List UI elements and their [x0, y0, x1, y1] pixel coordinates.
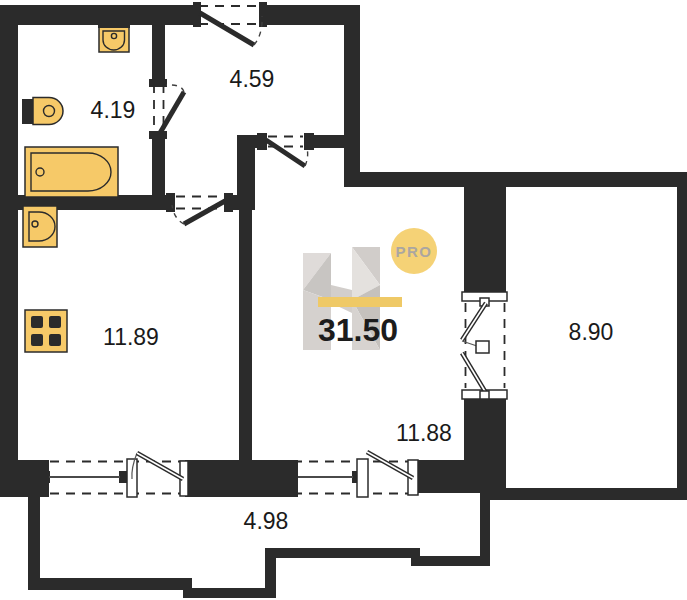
living-area-label: 11.88 [396, 420, 452, 446]
balcony-right-area-label: 8.90 [569, 319, 614, 345]
living-door-icon [266, 137, 308, 167]
floor-plan: PRO 4.19 4.59 11.89 11.88 8.90 4.98 31.5… [0, 0, 687, 600]
kitchen-area-label: 11.89 [103, 324, 159, 350]
stove-icon [25, 310, 67, 352]
kitchen-sink-icon [23, 206, 57, 247]
logo-underline-bar [318, 297, 402, 307]
balcony-bottom-area-label: 4.98 [244, 508, 289, 534]
hallway-area-label: 4.59 [230, 66, 275, 92]
balcony-door-icon [462, 292, 507, 399]
bathtub-icon [25, 147, 118, 197]
toilet-icon [22, 98, 63, 125]
kitchen-balcony-door-icon [127, 453, 188, 497]
bathroom-door-icon [154, 84, 184, 133]
total-area-label: 31.50 [318, 312, 398, 348]
sink-icon [98, 22, 130, 52]
kitchen-door-icon [172, 197, 225, 225]
entrance-door-icon [199, 6, 262, 45]
logo-pro-label: PRO [395, 243, 432, 260]
bathroom-area-label: 4.19 [91, 97, 136, 123]
